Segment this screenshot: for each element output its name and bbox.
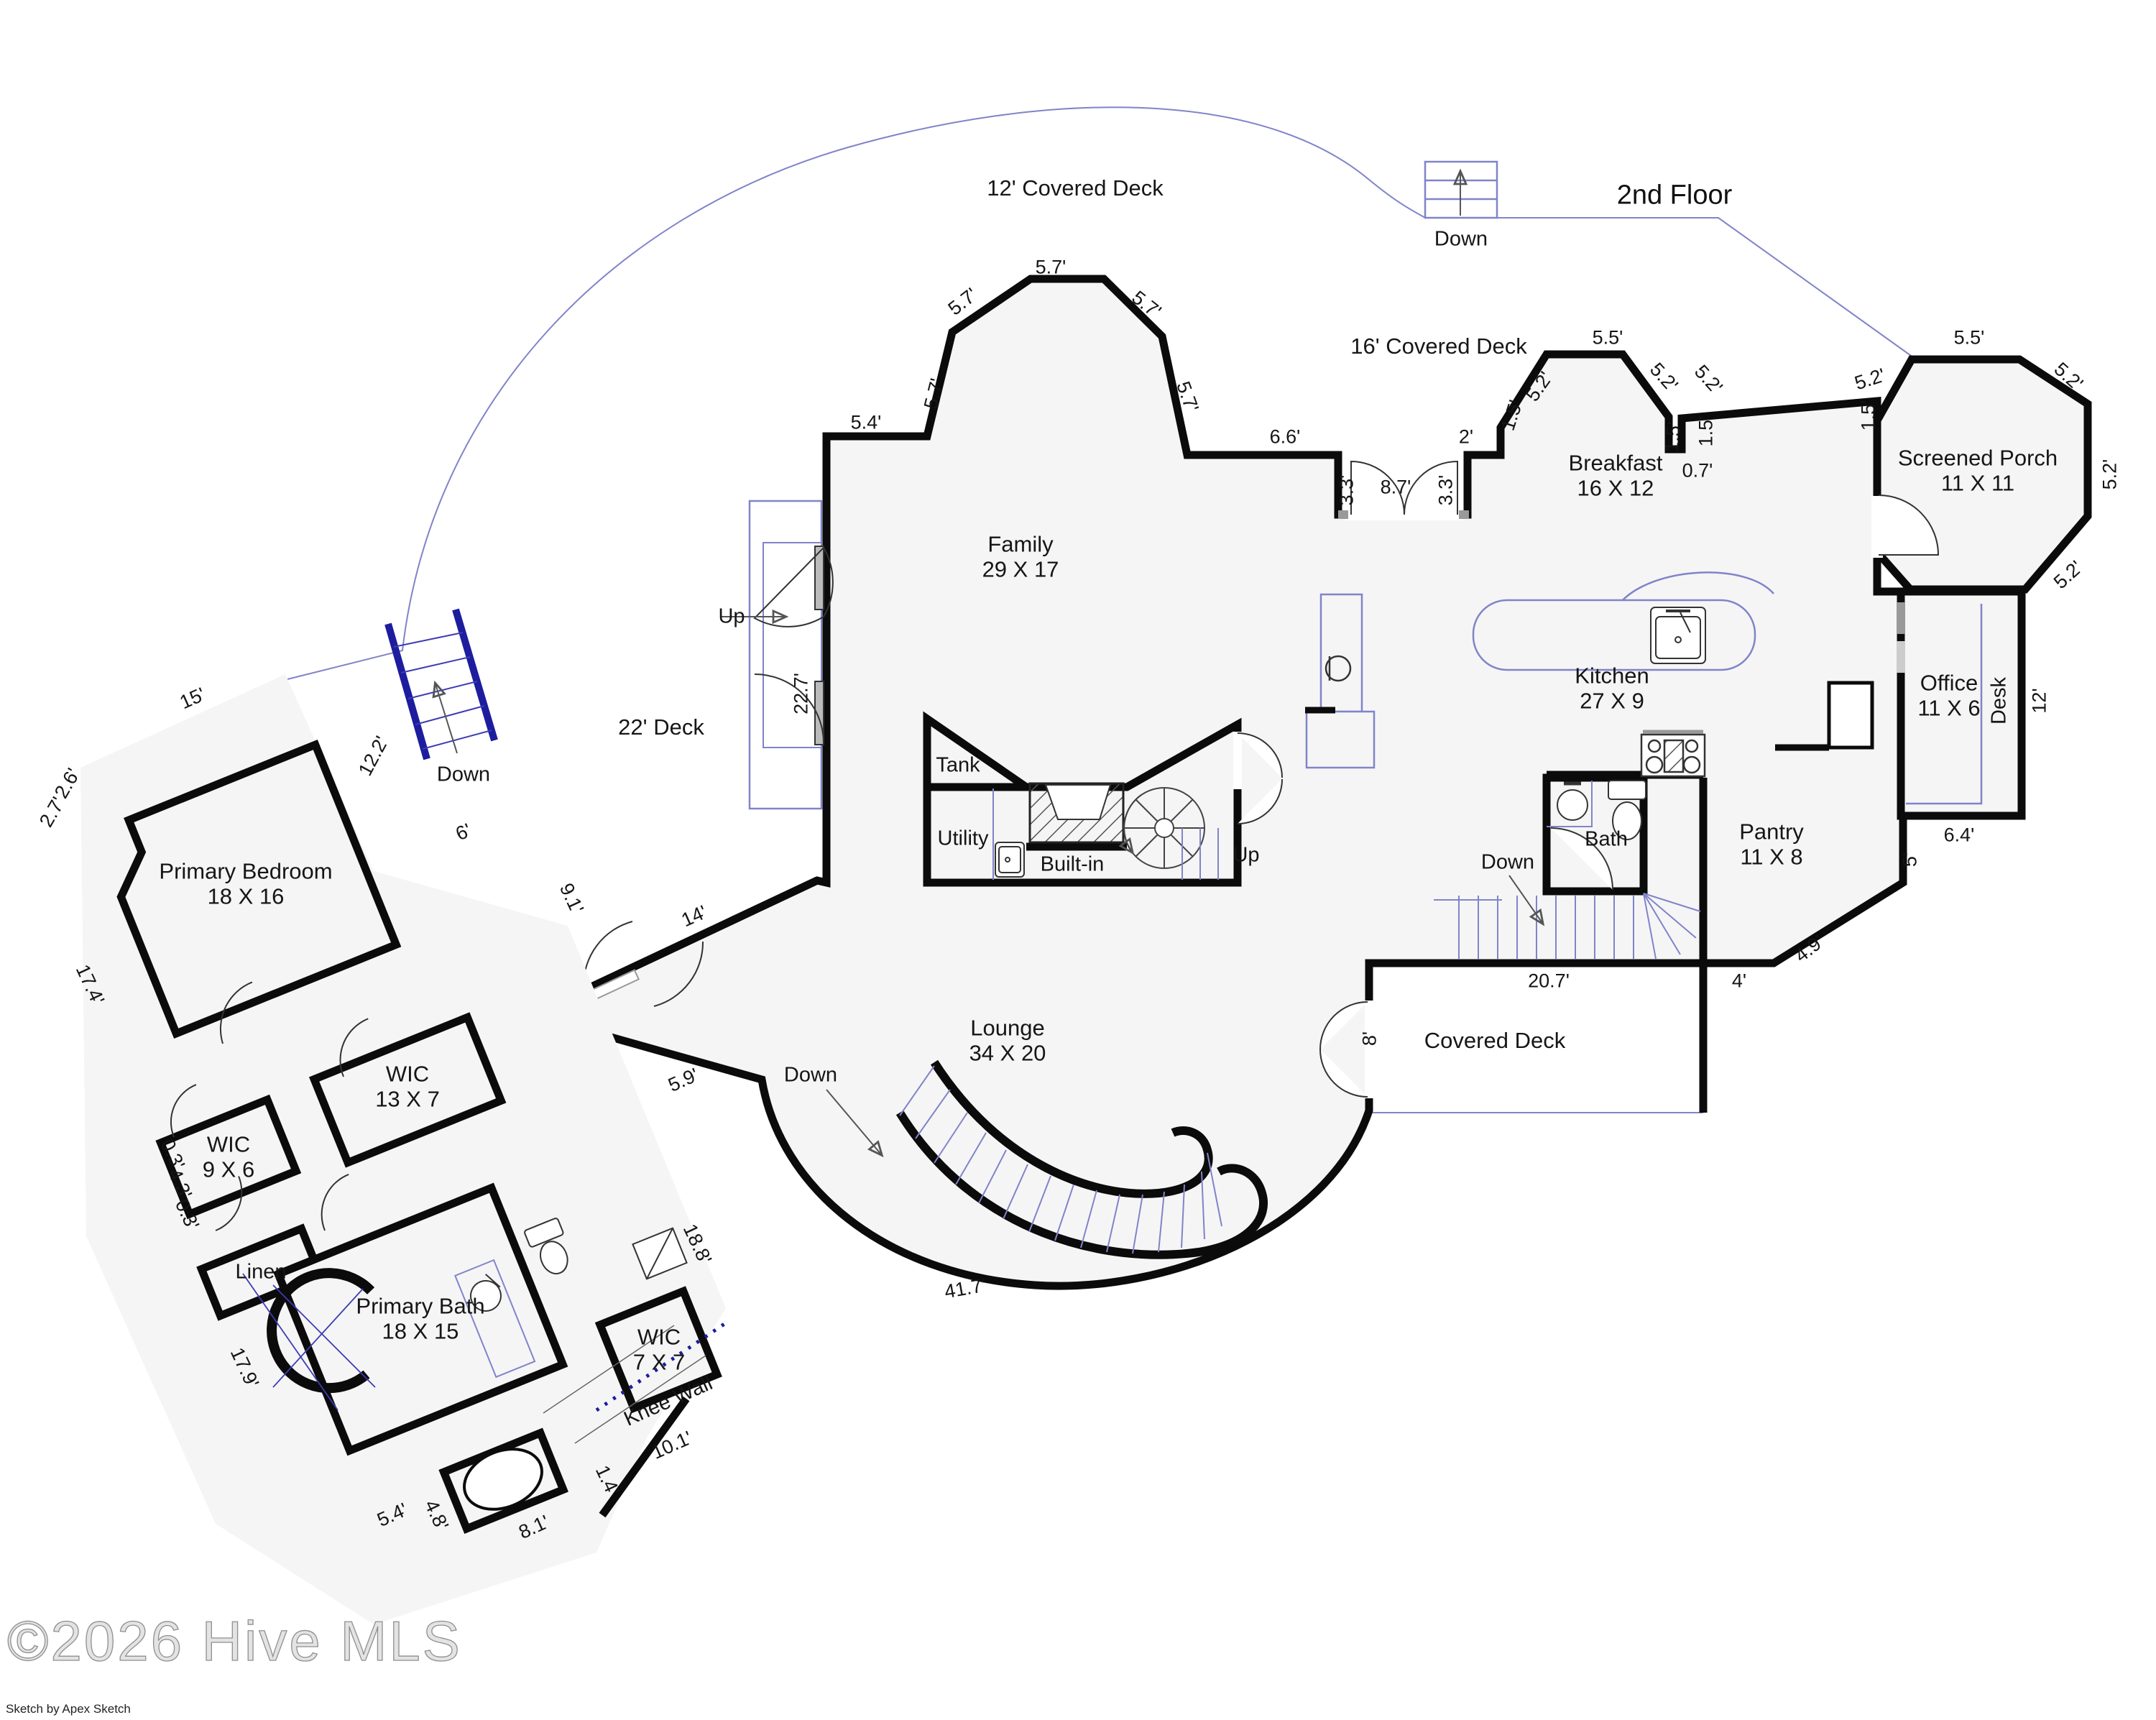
island-sink (1651, 607, 1705, 663)
room-primary-bath: Primary Bath18 X 15 (356, 1294, 484, 1343)
dim-label: 1.5' (1661, 420, 1686, 453)
dim-label: 3.3' (1336, 475, 1358, 506)
utility-sink (995, 842, 1024, 877)
floor-title: 2nd Floor (1617, 180, 1733, 211)
up-label-spiral: Up (1233, 844, 1259, 868)
room-wic-9x6: WIC9 X 6 (203, 1132, 254, 1182)
family-up-stairs (720, 501, 833, 809)
dim-label: 6.4' (1944, 824, 1975, 847)
area-12-covered-deck: 12' Covered Deck (987, 175, 1163, 201)
room-wic-13x7: WIC13 X 7 (375, 1062, 440, 1111)
refrigerator (1829, 683, 1872, 748)
room-kitchen: Kitchen27 X 9 (1575, 663, 1649, 713)
utility-label: Utility (938, 827, 989, 851)
dim-label: 5' (1899, 852, 1922, 867)
room-family: Family29 X 17 (982, 532, 1059, 581)
dim-label: 1.5' (1695, 416, 1718, 447)
built-in-label: Built-in (1041, 853, 1105, 877)
dim-label: 5.2' (2099, 459, 2122, 490)
room-wic-7x7: WIC7 X 7 (633, 1325, 685, 1374)
area-covered-deck: Covered Deck (1424, 1028, 1565, 1054)
floorplan-page: 2nd Floor ©2026 Hive MLS Sketch by Apex … (0, 0, 2156, 1720)
dim-label: 5.4' (851, 412, 882, 434)
dim-label: 22.7' (791, 673, 813, 714)
dim-label: 2' (1459, 426, 1473, 449)
room-breakfast: Breakfast16 X 12 (1569, 451, 1663, 500)
dim-label: 8.7' (1381, 477, 1411, 499)
spiral-stair (1124, 788, 1204, 868)
dim-label: 4' (1732, 970, 1746, 993)
desk-label: Desk (1988, 677, 2012, 725)
area-22-deck: 22' Deck (618, 714, 704, 740)
dim-label: 5.7' (1036, 257, 1067, 279)
dim-label: 3.3' (1435, 475, 1457, 506)
range (1641, 732, 1705, 776)
room-office: Office11 X 6 (1917, 671, 1980, 720)
watermark: ©2026 Hive MLS (7, 1609, 462, 1674)
area-16-covered-deck: 16' Covered Deck (1350, 334, 1526, 359)
down-label-deck-stairs: Down (437, 763, 490, 787)
room-screened-porch: Screened Porch11 X 11 (1898, 446, 2058, 495)
tank-label: Tank (936, 754, 980, 778)
room-pantry: Pantry11 X 8 (1739, 819, 1804, 869)
down-label-winder: Down (1481, 851, 1534, 875)
built-in-recess (1046, 785, 1110, 819)
dim-label: 5.5' (1593, 327, 1623, 349)
down-label-top: Down (1434, 228, 1488, 252)
dim-label: 1.5' (1858, 400, 1880, 431)
down-label-lounge: Down (784, 1064, 837, 1087)
deck-blue-stairs (388, 610, 494, 759)
dim-label: 0.7' (1682, 460, 1713, 482)
dim-label: 6.6' (1270, 426, 1301, 449)
dim-label: 12' (2029, 688, 2051, 713)
linen-label: Linen (236, 1261, 287, 1284)
dim-label: 8' (1359, 1031, 1381, 1046)
dim-label: 5.5' (1954, 327, 1985, 349)
dim-label: 20.7' (1528, 970, 1570, 993)
bath-label: Bath (1585, 828, 1628, 852)
top-deck-stairs (1425, 162, 1497, 218)
room-primary-bedroom: Primary Bedroom18 X 16 (159, 859, 332, 909)
sketch-credit: Sketch by Apex Sketch (6, 1702, 131, 1716)
up-label-family: Up (718, 605, 745, 629)
kitchen-island (1473, 600, 1755, 670)
room-lounge: Lounge34 X 20 (969, 1016, 1046, 1065)
